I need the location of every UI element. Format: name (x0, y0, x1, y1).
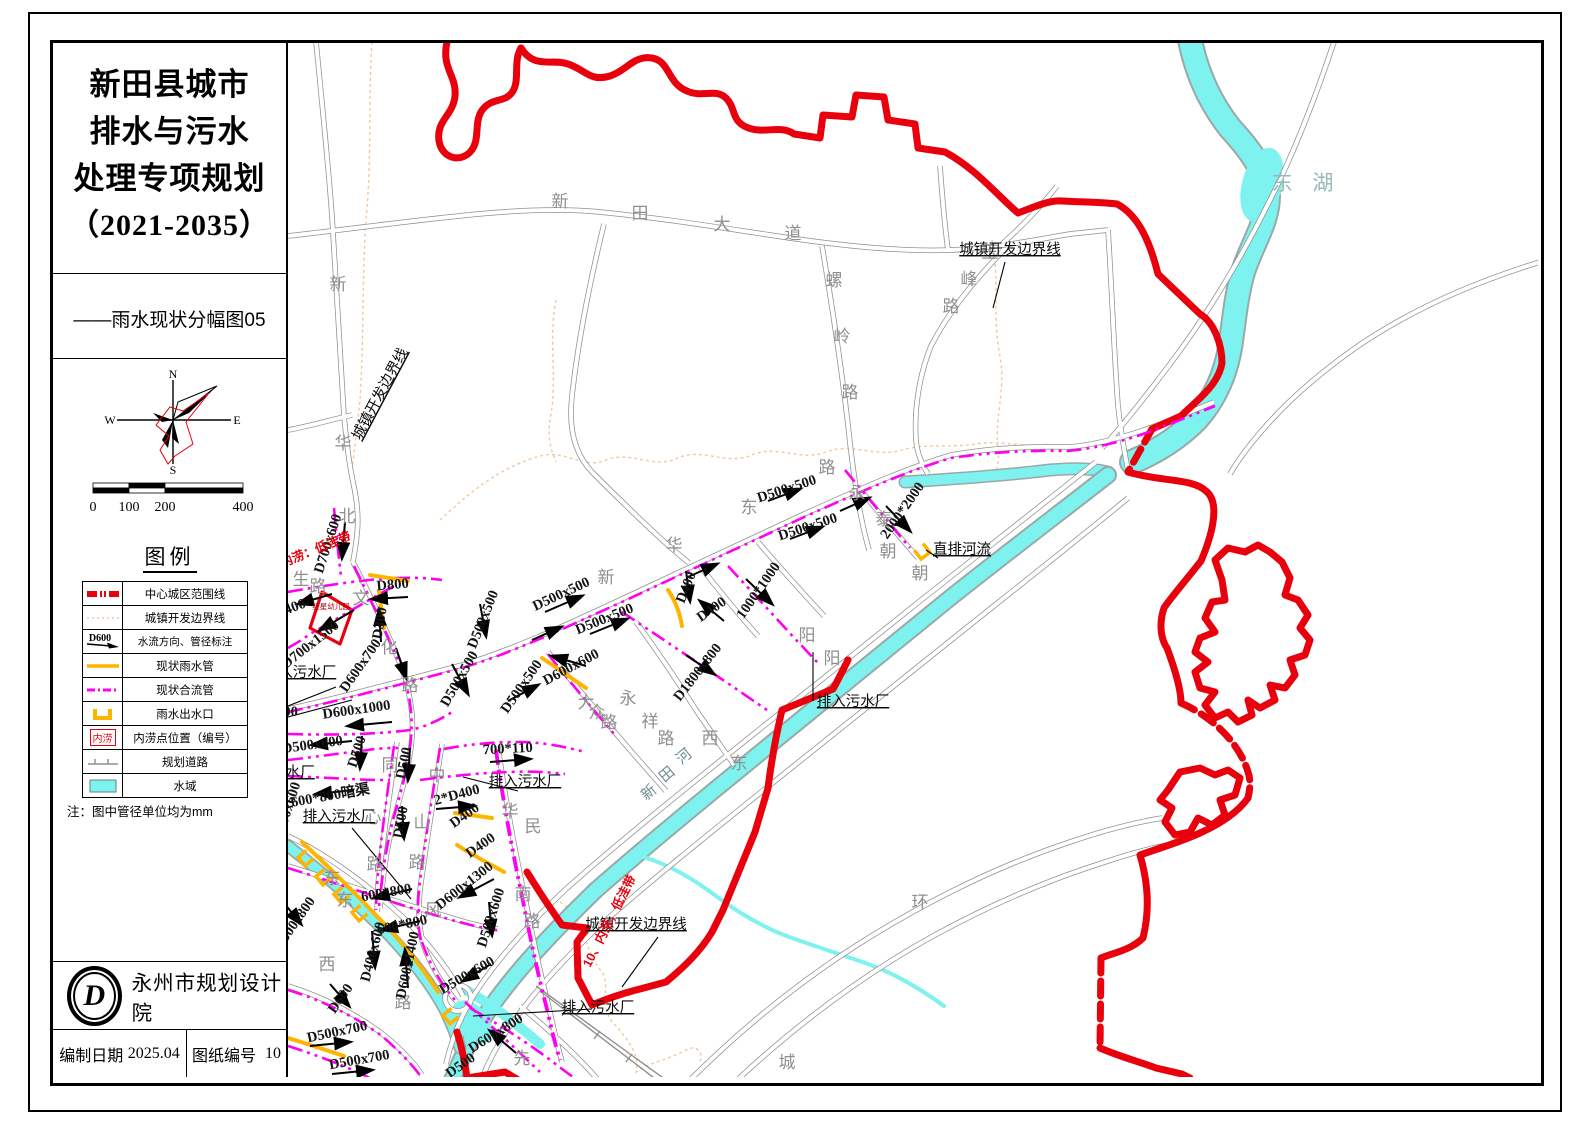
map-label-road: 新 (552, 192, 569, 211)
map-label-road: 山 (414, 813, 431, 832)
map-label-road: 螺 (826, 271, 843, 290)
rain-pipe-symbol (83, 654, 123, 677)
map-label-road: 峰 (961, 270, 978, 289)
map-label-road: 西 (702, 729, 719, 748)
org-name: 永州市规划设计院 (132, 966, 286, 1026)
map-label-road: 新 (598, 568, 615, 587)
map-label-road: 环 (912, 893, 929, 912)
map-canvas: 新田大道螺岭路玉峰路新华北生路新华东路文化路大众路同心路中山路华民南路永祥路西东… (288, 43, 1538, 1077)
map-label-ann: 城镇开发边界线 (349, 345, 412, 443)
date-cell: 编制日期 2025.04 (53, 1030, 187, 1077)
dev-boundary-symbol (83, 606, 123, 629)
map-label-road: 东 (337, 891, 354, 910)
map-label-pipe: D500x500 (530, 574, 592, 614)
legend-row-water: 水域 (83, 774, 247, 797)
map-label-road: 民 (525, 817, 542, 836)
legend: 图例 中心城区范围线 城镇开发边界线 D600 水流方向、管径标注 (53, 541, 286, 571)
flow-direction-symbol: D600 (83, 630, 123, 653)
map-label-pipe: D500x500 (498, 657, 546, 716)
legend-row-flow: D600 水流方向、管径标注 (83, 630, 247, 654)
map-label-road: 路 (819, 458, 836, 477)
map-label-road: 路 (842, 383, 859, 402)
org-logo-icon: D (67, 966, 122, 1026)
svg-text:400: 400 (233, 500, 254, 515)
map-label-pipe: D500x700 (306, 1018, 369, 1046)
legend-row-outfall: 雨水出水口 (83, 702, 247, 726)
map-label-ann: 城镇开发边界线 (959, 241, 1061, 258)
map-label-road: 道 (785, 224, 802, 243)
legend-row-dev-boundary: 城镇开发边界线 (83, 606, 247, 630)
sheet-number-cell: 图纸编号 10 (187, 1030, 286, 1077)
map-label-ann: 排入污水厂 (562, 999, 635, 1016)
map-label-road: 新 (330, 275, 347, 294)
title-line-years: （2021-2035） (53, 202, 286, 249)
map-label-ann: 直排河流 (933, 541, 991, 558)
map-label-road: 东 (731, 754, 748, 773)
plan-sheet: 新田县城市 排水与污水 处理专项规划 （2021-2035） ——雨水现状分幅图… (0, 0, 1588, 1122)
map-label-road: 阳 (824, 649, 841, 668)
map-label-road: 东 (324, 869, 341, 888)
map-label-pipe: D400x600 (357, 920, 388, 983)
map-label-road: 西 (319, 955, 336, 974)
title-line-3: 处理专项规划 (53, 155, 286, 202)
map-label-road: 南 (515, 885, 532, 904)
map-label-pipe: D500 (390, 805, 411, 840)
map-label-road: 朝 (880, 542, 897, 561)
svg-text:100: 100 (119, 500, 140, 515)
legend-row-planned-road: 规划道路 (83, 750, 247, 774)
title-line-1: 新田县城市 (53, 61, 286, 108)
map-label-road: 永 (849, 484, 866, 503)
map-label-road: 田 (632, 204, 649, 223)
planned-road-symbol (83, 750, 123, 773)
map-label-ann: 排入污水厂 (303, 808, 376, 825)
sheet-subtitle: ——雨水现状分幅图05 (53, 305, 286, 332)
map-label-pipe: D1800x800 (670, 641, 725, 705)
map-label-ann: 排入污水厂 (817, 693, 890, 710)
map-label-road: 先 (514, 1049, 531, 1068)
map-label-road: 路 (367, 855, 384, 874)
map-label-road: 华 (335, 434, 352, 453)
map-label-road: 路 (601, 713, 618, 732)
svg-text:0: 0 (90, 500, 97, 515)
svg-text:200: 200 (155, 500, 176, 515)
title-panel: 新田县城市 排水与污水 处理专项规划 （2021-2035） ——雨水现状分幅图… (53, 43, 288, 1077)
water-bodies (288, 43, 1291, 1077)
map-label-road: 祥 (642, 712, 659, 731)
map-label-pipe: D500x500 (437, 648, 481, 709)
compass-rose-icon: N E S W (93, 368, 253, 478)
svg-text:N: N (169, 368, 178, 381)
map-label-pipe: x400 (288, 596, 308, 621)
title-block-bottom-row: 编制日期 2025.04 图纸编号 10 (53, 1030, 286, 1077)
water-symbol (83, 774, 123, 797)
map-label-pipe: 600*800暗渠 (289, 779, 371, 811)
map-label-pipe: 800 (288, 704, 298, 720)
map-label-road: 文 (353, 589, 370, 608)
map-label-road: 大 (714, 215, 731, 234)
map-label-road: 中 (429, 766, 446, 785)
map-label-ann: 排入污水厂 (489, 773, 562, 790)
map-label-road: 岭 (834, 327, 851, 346)
map-label-lake: 东 湖 (1272, 172, 1341, 195)
map-label-tiny: 红星幼儿园 (312, 601, 350, 611)
flood-point-symbol: 内涝 (83, 726, 123, 749)
map-label-road: 路 (310, 577, 327, 596)
map-label-road: 生 (293, 570, 310, 589)
map-label-road: 朝 (912, 564, 929, 583)
map-label-road: 路 (402, 676, 419, 695)
map-label-road: 华 (666, 536, 683, 555)
page-title: 新田县城市 排水与污水 处理专项规划 （2021-2035） (53, 61, 286, 249)
svg-text:E: E (233, 413, 240, 427)
map-label-road: 路 (943, 297, 960, 316)
map-label-ann: 排入污水厂 (288, 664, 336, 681)
combined-pipe-symbol (83, 678, 123, 701)
map-label-river: 河 (673, 745, 695, 768)
map-label-road: 东 (741, 498, 758, 517)
map-label-pipe: 700*110 (482, 740, 533, 759)
legend-note: 注：图中管径单位均为mm (67, 801, 213, 820)
central-city-boundary-symbol (83, 582, 123, 605)
map-label-road: 路 (658, 729, 675, 748)
map-label-road: 路 (524, 912, 541, 931)
map-label-ann: 污水厂 (288, 764, 315, 781)
legend-row-combined-pipe: 现状合流管 (83, 678, 247, 702)
legend-row-boundary: 中心城区范围线 (83, 582, 247, 606)
map-label-pipe: 1000*1000 (733, 559, 784, 622)
map-label-road: 永 (620, 689, 637, 708)
org-row: D 永州市规划设计院 (53, 963, 286, 1029)
road-network (288, 43, 1538, 1077)
legend-table: 中心城区范围线 城镇开发边界线 D600 水流方向、管径标注 现 (82, 581, 248, 798)
map-label-pipe: D800 (376, 576, 410, 595)
map-label-pipe: D500x500 (755, 472, 818, 506)
legend-row-flood-point: 内涝 内涝点位置（编号） (83, 726, 247, 750)
scale-bar: 0 100 200 400 (83, 475, 273, 517)
title-line-2: 排水与污水 (53, 108, 286, 155)
map-label-pipe: D400 (463, 830, 499, 862)
map-labels: 新田大道螺岭路玉峰路新华北生路新华东路文化路大众路同心路中山路华民南路永祥路西东… (288, 172, 1340, 1077)
outfall-symbol (83, 702, 123, 725)
map-label-road: 路 (409, 853, 426, 872)
legend-row-rain-pipe: 现状雨水管 (83, 654, 247, 678)
map-label-road: 阳 (799, 626, 816, 645)
map-label-pipe: D500x700 (328, 1047, 391, 1073)
legend-title: 图例 (53, 541, 286, 571)
map-label-pipe: D500x600 (474, 886, 508, 949)
svg-text:D600: D600 (88, 633, 110, 644)
map-label-pipe: D500 (345, 734, 370, 770)
map-label-pipe: D500x500 (464, 588, 502, 651)
map-label-road: 华 (502, 802, 519, 821)
svg-text:W: W (104, 413, 116, 427)
map-label-road: 城 (779, 1053, 796, 1072)
map-label-pipe: D500x800 (288, 894, 319, 953)
